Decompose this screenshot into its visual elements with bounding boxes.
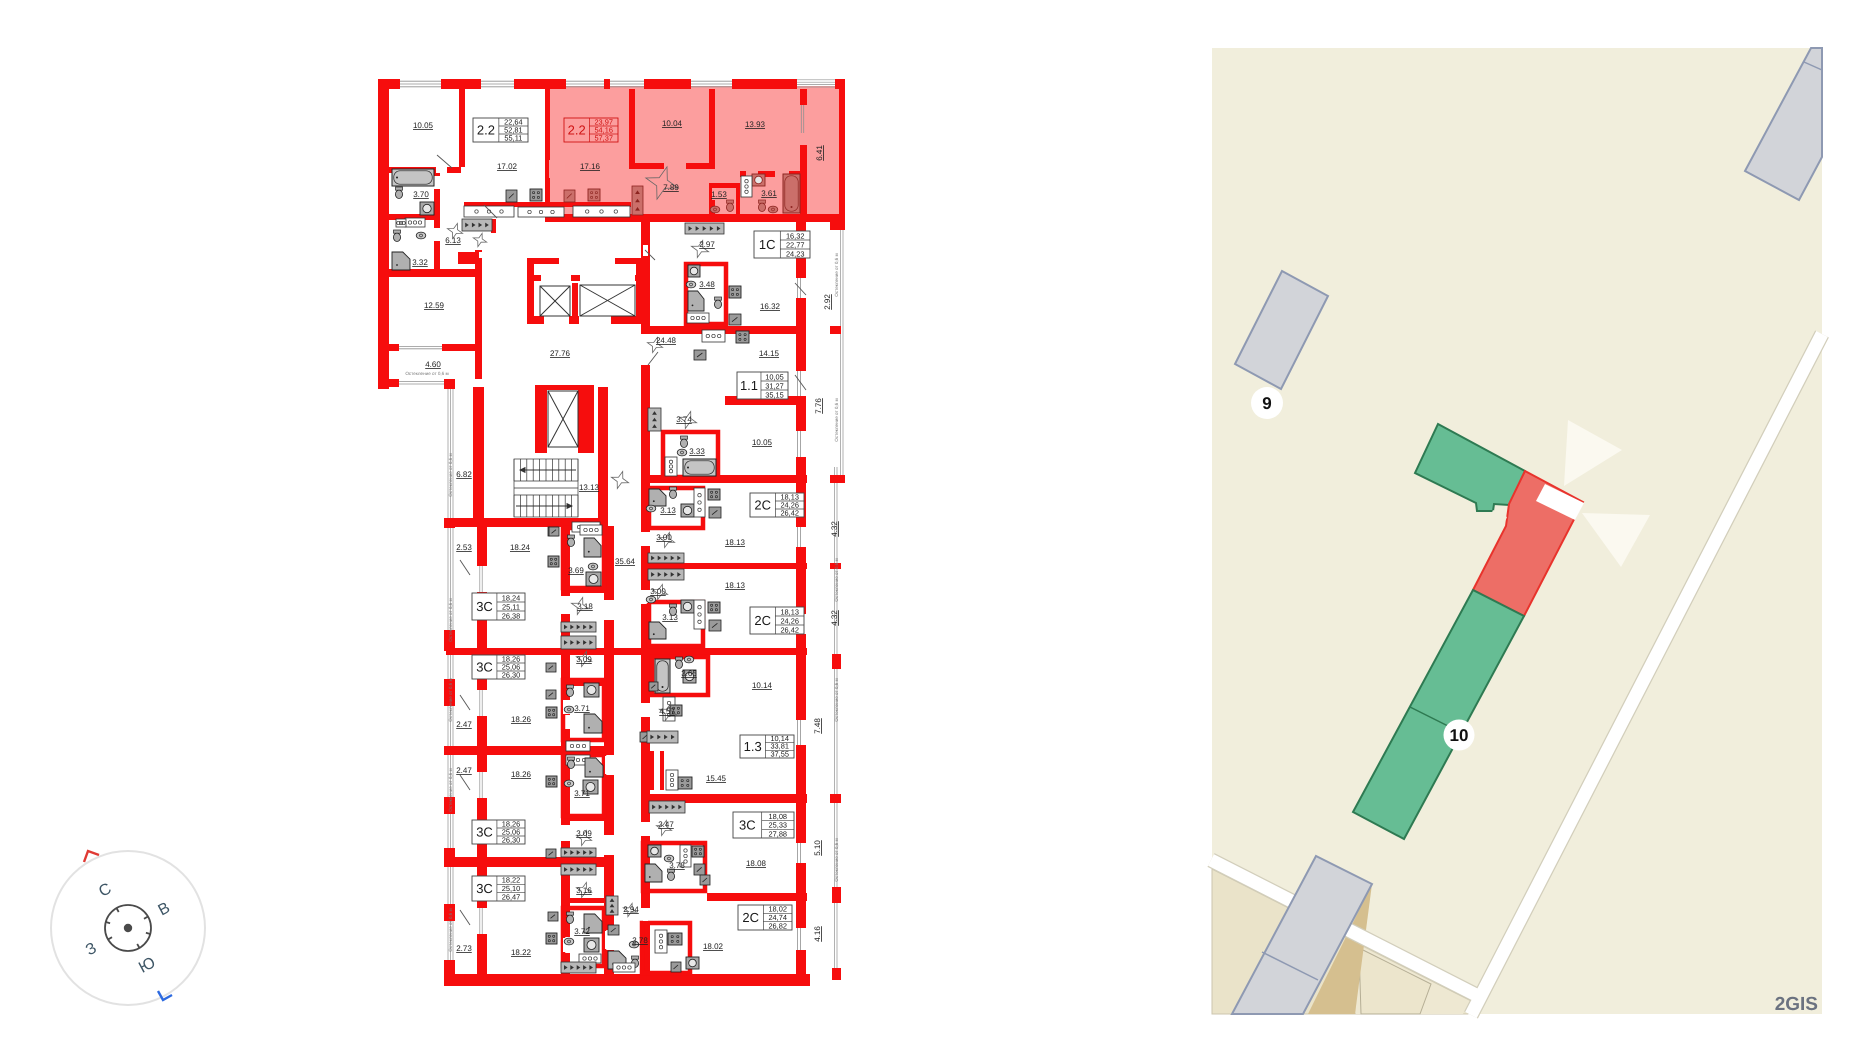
svg-text:18.26: 18.26 [511, 770, 532, 779]
svg-text:Остекление от 0,6 м: Остекление от 0,6 м [448, 453, 453, 496]
svg-text:2С: 2С [742, 910, 759, 925]
svg-text:37,55: 37,55 [770, 749, 789, 758]
svg-text:2.47: 2.47 [456, 720, 472, 729]
svg-text:3.72: 3.72 [574, 927, 590, 936]
svg-text:25,11: 25,11 [502, 602, 520, 611]
svg-text:1.1: 1.1 [740, 378, 758, 393]
svg-text:4.60: 4.60 [425, 360, 441, 369]
svg-text:3.18: 3.18 [577, 602, 593, 611]
svg-text:7.76: 7.76 [814, 398, 823, 414]
svg-text:24.48: 24.48 [656, 336, 677, 345]
svg-text:18.02: 18.02 [703, 942, 724, 951]
svg-text:4.57: 4.57 [659, 707, 675, 716]
svg-text:3С: 3С [476, 660, 493, 675]
svg-text:2С: 2С [754, 498, 771, 513]
svg-text:Остекление от 0,6 м: Остекление от 0,6 м [448, 908, 453, 951]
svg-text:Остекление от 0,6 м: Остекление от 0,6 м [405, 371, 448, 376]
svg-text:2.2: 2.2 [568, 123, 586, 138]
svg-text:3.71: 3.71 [574, 704, 590, 713]
svg-text:27,88: 27,88 [769, 829, 788, 838]
svg-text:35.64: 35.64 [615, 557, 636, 566]
svg-text:26,30: 26,30 [502, 670, 521, 679]
svg-text:18,13: 18,13 [780, 607, 799, 616]
svg-text:3С: 3С [476, 825, 493, 840]
svg-text:2GIS: 2GIS [1775, 994, 1818, 1015]
svg-text:13.13: 13.13 [579, 483, 600, 492]
svg-text:57,37: 57,37 [594, 133, 613, 142]
svg-text:Остекление от 0,6 м: Остекление от 0,6 м [448, 598, 453, 641]
svg-text:13.93: 13.93 [745, 120, 766, 129]
svg-text:Остекление от 0,6 м: Остекление от 0,6 м [834, 253, 839, 296]
svg-text:3.48: 3.48 [699, 280, 715, 289]
svg-text:3.47: 3.47 [658, 820, 674, 829]
svg-text:18.26: 18.26 [511, 715, 532, 724]
svg-text:3.65: 3.65 [681, 669, 697, 678]
svg-text:31,27: 31,27 [765, 381, 784, 390]
svg-text:5.10: 5.10 [813, 840, 822, 856]
svg-text:35,15: 35,15 [765, 390, 784, 399]
svg-text:3С: 3С [476, 881, 493, 896]
svg-text:26,42: 26,42 [780, 625, 799, 634]
svg-text:4.32: 4.32 [830, 610, 839, 626]
svg-text:16.32: 16.32 [760, 302, 781, 311]
svg-text:16,32: 16,32 [786, 231, 805, 240]
svg-text:3.13: 3.13 [662, 613, 678, 622]
svg-text:3.33: 3.33 [689, 447, 705, 456]
svg-text:10: 10 [1450, 726, 1469, 745]
svg-text:24,23: 24,23 [786, 249, 805, 258]
svg-text:17.16: 17.16 [580, 162, 601, 171]
svg-text:10,05: 10,05 [765, 372, 784, 381]
svg-text:3.32: 3.32 [412, 258, 428, 267]
svg-text:6.82: 6.82 [456, 470, 472, 479]
svg-text:3.13: 3.13 [660, 506, 676, 515]
svg-text:6.41: 6.41 [815, 145, 824, 161]
svg-text:22,77: 22,77 [786, 240, 805, 249]
svg-text:18.22: 18.22 [511, 948, 532, 957]
svg-text:3.61: 3.61 [761, 189, 777, 198]
svg-text:2.47: 2.47 [456, 766, 472, 775]
svg-text:Остекление от 0,6 м: Остекление от 0,6 м [834, 838, 839, 881]
svg-text:3.78: 3.78 [632, 936, 648, 945]
svg-text:Остекление от 0,6 м: Остекление от 0,6 м [448, 678, 453, 721]
svg-text:26,42: 26,42 [780, 508, 799, 517]
svg-text:Остекление от 0,6 м: Остекление от 0,6 м [834, 558, 839, 601]
svg-text:26,30: 26,30 [502, 835, 521, 844]
svg-text:26,82: 26,82 [768, 921, 787, 930]
svg-text:15.45: 15.45 [706, 774, 727, 783]
svg-text:2.73: 2.73 [456, 944, 472, 953]
svg-text:10.05: 10.05 [413, 121, 434, 130]
svg-text:2.97: 2.97 [699, 240, 715, 249]
svg-text:6.13: 6.13 [445, 236, 461, 245]
svg-text:3.00: 3.00 [656, 533, 672, 542]
svg-text:Остекление от 0,6 м: Остекление от 0,6 м [448, 768, 453, 811]
svg-text:3.09: 3.09 [576, 829, 592, 838]
svg-text:17.02: 17.02 [497, 162, 518, 171]
svg-text:3.69: 3.69 [568, 566, 584, 575]
svg-text:12.59: 12.59 [424, 301, 445, 310]
svg-text:Остекление от 0,6 м: Остекление от 0,6 м [834, 678, 839, 721]
svg-text:3.74: 3.74 [676, 415, 692, 424]
svg-text:3.78: 3.78 [669, 861, 685, 870]
svg-text:1.3: 1.3 [744, 739, 762, 754]
svg-text:1.53: 1.53 [711, 190, 727, 199]
svg-text:3С: 3С [739, 818, 756, 833]
svg-text:3С: 3С [476, 599, 493, 614]
svg-text:3.16: 3.16 [576, 886, 592, 895]
svg-text:3.09: 3.09 [576, 655, 592, 664]
svg-text:7.48: 7.48 [813, 718, 822, 734]
svg-text:1С: 1С [759, 237, 776, 252]
svg-text:27.76: 27.76 [550, 349, 571, 358]
svg-text:10.05: 10.05 [752, 438, 773, 447]
svg-text:55,11: 55,11 [504, 133, 522, 142]
svg-text:10.14: 10.14 [752, 681, 773, 690]
svg-text:3.00: 3.00 [650, 587, 666, 596]
svg-text:18.13: 18.13 [725, 581, 746, 590]
svg-text:18,24: 18,24 [502, 593, 521, 602]
svg-text:3.70: 3.70 [413, 190, 429, 199]
svg-text:26,47: 26,47 [502, 892, 521, 901]
svg-text:7.89: 7.89 [663, 183, 679, 192]
svg-text:2.92: 2.92 [823, 294, 832, 310]
svg-text:26,38: 26,38 [502, 611, 521, 620]
svg-text:18.08: 18.08 [746, 859, 767, 868]
svg-text:18.13: 18.13 [725, 538, 746, 547]
svg-text:25,33: 25,33 [769, 821, 788, 830]
svg-text:2С: 2С [754, 613, 771, 628]
svg-text:14.15: 14.15 [759, 349, 780, 358]
svg-text:24,26: 24,26 [780, 616, 799, 625]
svg-text:18.24: 18.24 [510, 543, 531, 552]
svg-text:2.2: 2.2 [477, 123, 495, 138]
svg-text:Остекление от 0,6 м: Остекление от 0,6 м [834, 398, 839, 441]
svg-text:9: 9 [1262, 394, 1271, 413]
svg-text:2.94: 2.94 [623, 905, 639, 914]
svg-text:4.32: 4.32 [830, 521, 839, 537]
svg-text:3.71: 3.71 [574, 789, 590, 798]
svg-text:4.16: 4.16 [813, 926, 822, 942]
svg-text:2.53: 2.53 [456, 543, 472, 552]
svg-text:10.04: 10.04 [662, 119, 683, 128]
